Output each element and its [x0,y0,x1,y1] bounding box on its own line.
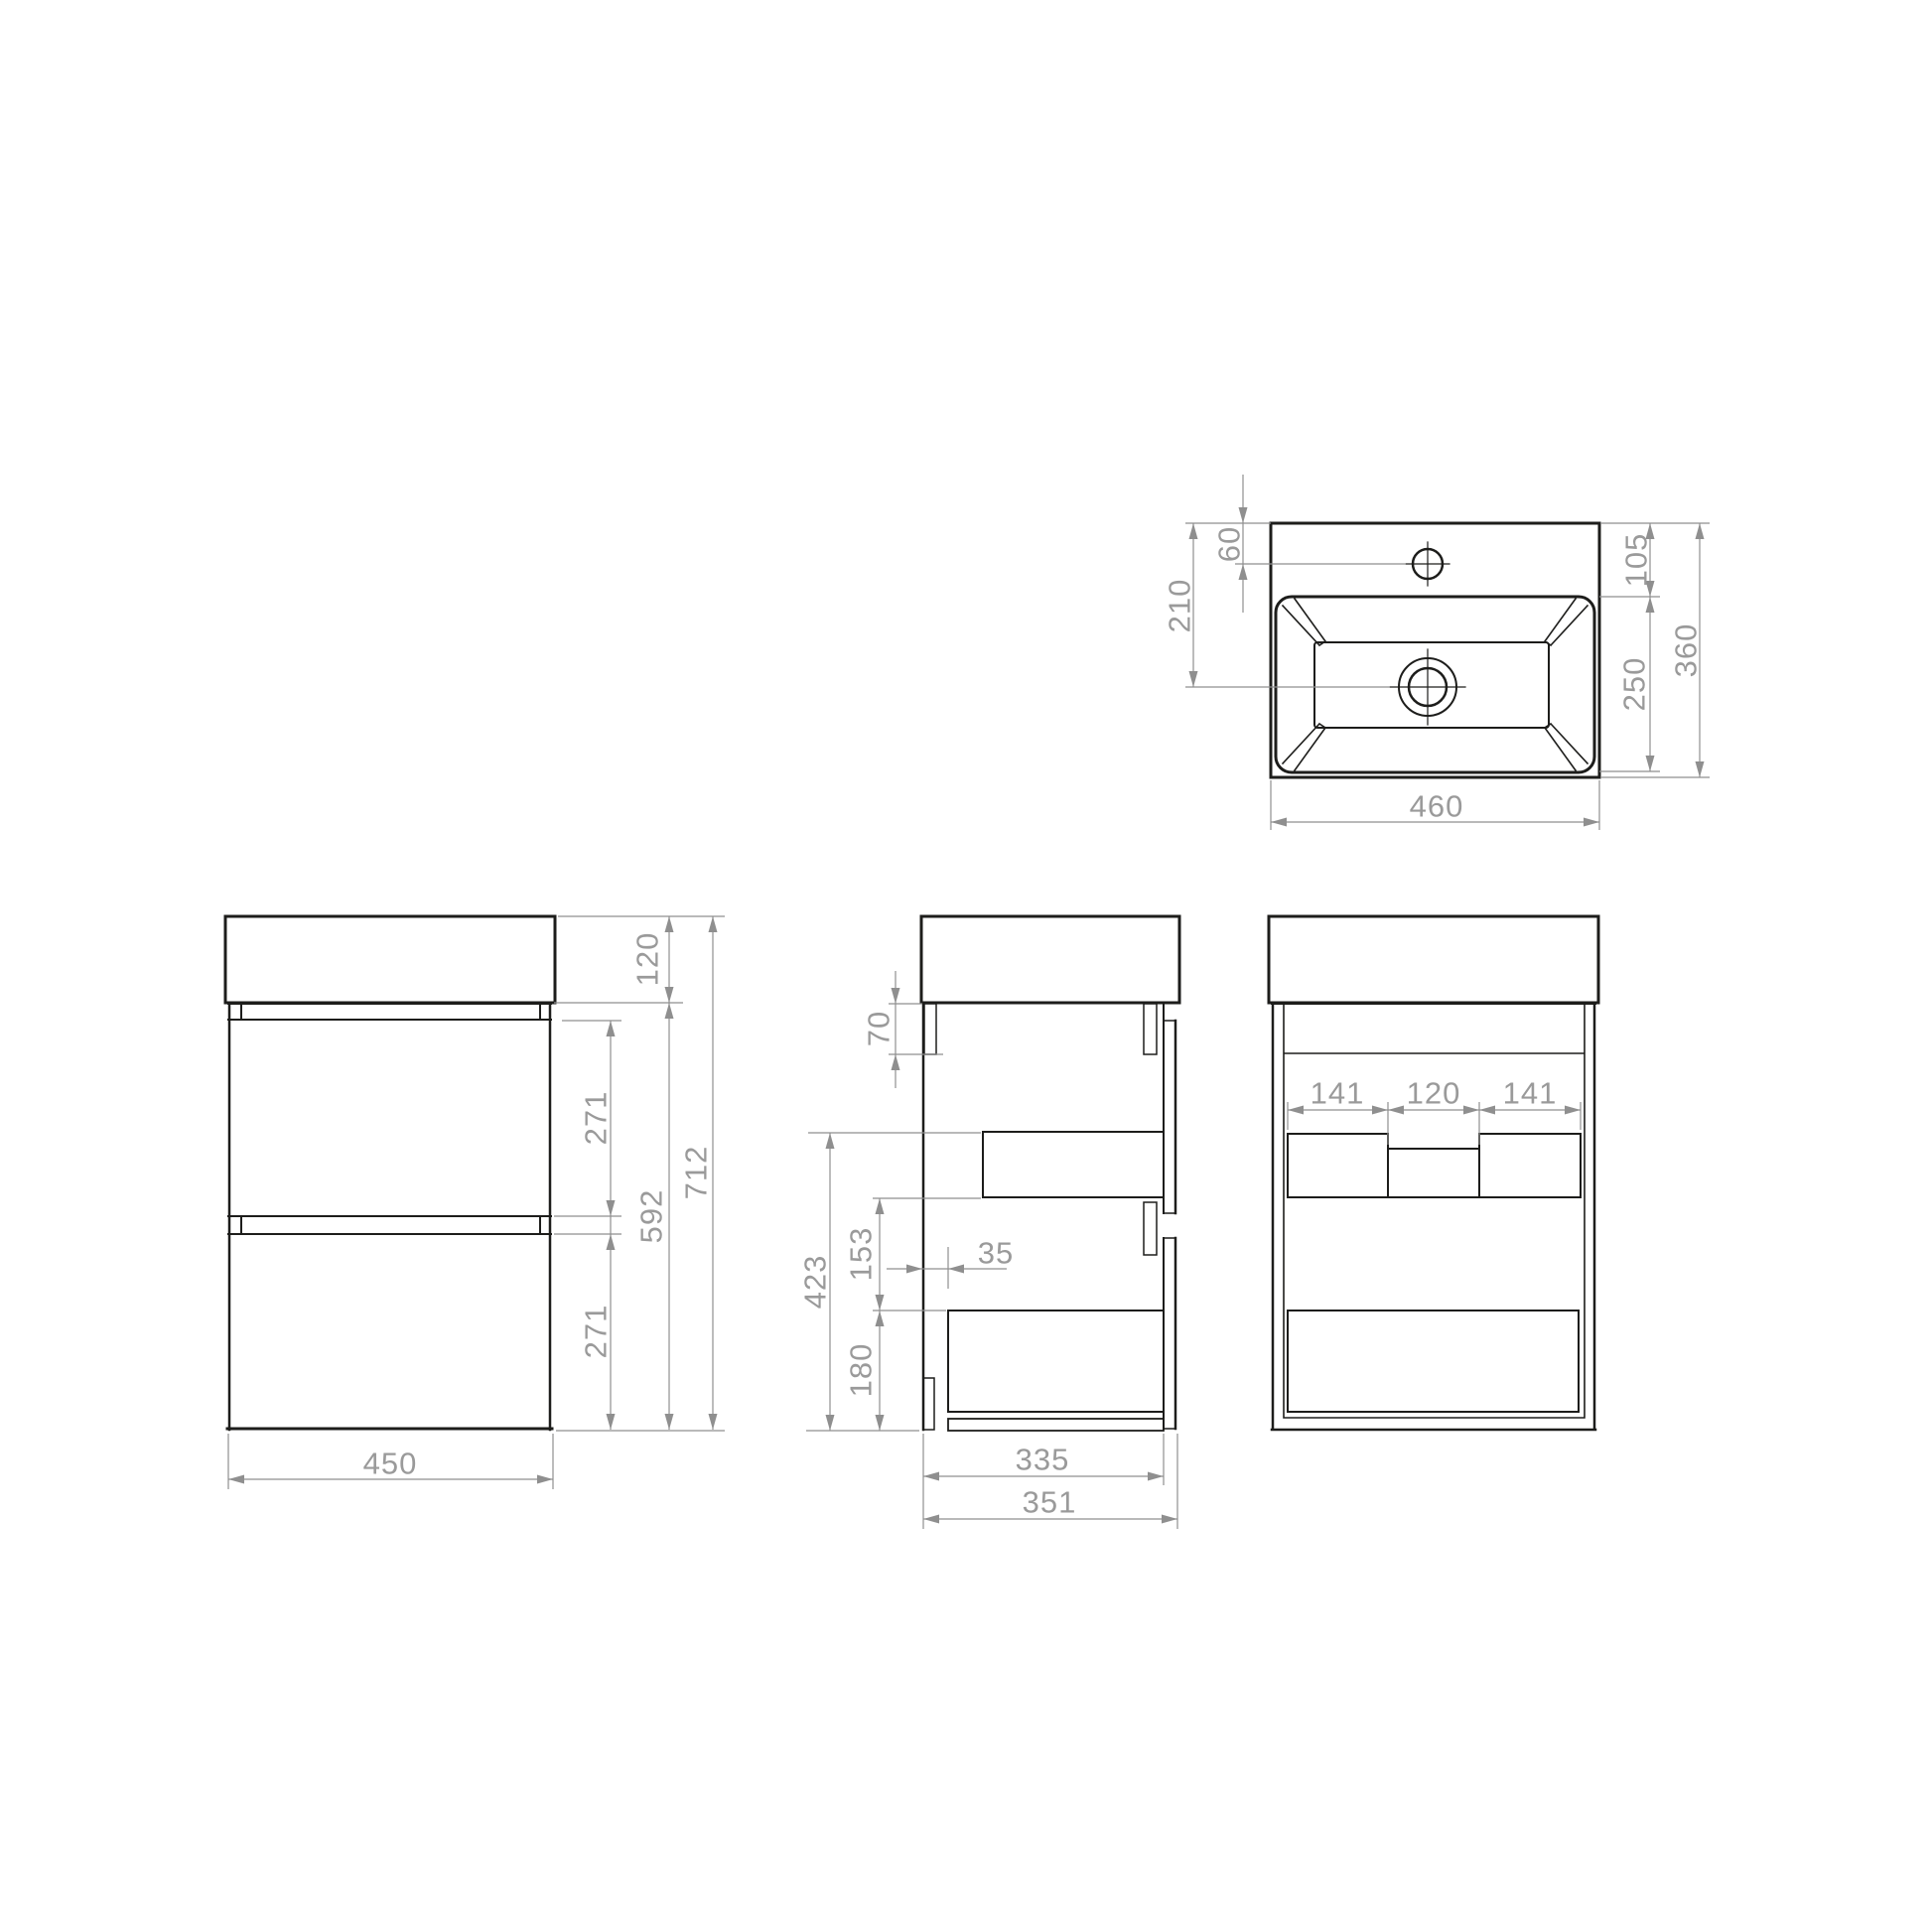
drain-crosshair [1390,649,1465,725]
dim-carcass-height: 592 [634,1189,669,1244]
dim-total-depth: 360 [1669,623,1704,678]
back-outline [1269,916,1598,1430]
dim-faucet-offset: 60 [1212,526,1247,562]
dim-drawer-spacing: 153 [844,1227,879,1282]
dim-cutout-right: 141 [1503,1076,1558,1111]
basin-outline [1271,523,1599,777]
faucet-crosshair [1406,542,1449,586]
cabinet-back-view: 141 120 141 [1269,916,1598,1430]
dim-basin-height: 120 [630,932,665,987]
carcass-inner [1284,1003,1585,1418]
handle-grooves [228,1004,551,1234]
cutout-left [1288,1134,1388,1197]
dim-cutout-left: 141 [1311,1076,1365,1111]
rail-back-top [924,1004,936,1054]
rail-front-top [1144,1004,1157,1054]
dim-upper-drawer: 271 [579,1091,614,1146]
basin-back [1269,916,1598,1003]
dim-depth: 351 [1023,1485,1077,1520]
dim-drain-offset: 210 [1163,579,1197,633]
rail-back-bottom [923,1378,934,1430]
lower-drawer-box [948,1311,1164,1412]
vanity-dimension-drawing: 60 210 105 250 360 460 120 271 592 271 7… [0,0,1932,1932]
dim-mounting-rail: 70 [862,1011,897,1046]
cabinet-front-view: 120 271 592 271 712 450 [225,916,725,1489]
upper-drawer-box [983,1132,1164,1197]
basin-side [921,916,1179,1003]
dim-lower-drawer: 271 [579,1305,614,1359]
basin-outer-rect [1271,523,1599,777]
dim-total-width: 460 [1410,789,1464,824]
lower-opening [1288,1311,1579,1412]
rail-front-mid [1144,1202,1157,1255]
cutout-right [1479,1134,1581,1197]
front-outline [225,916,555,1430]
basin-rim [1276,597,1594,772]
cabinet-side-view: 70 423 153 180 35 335 351 [798,916,1180,1529]
dim-width: 450 [363,1447,418,1481]
dim-inner-depth: 335 [1016,1443,1070,1477]
dim-cutout-center: 120 [1407,1076,1461,1111]
bottom-panel-hatched [948,1419,1164,1431]
dim-rim-to-basin: 105 [1619,533,1654,588]
dim-back-inset: 35 [978,1236,1014,1271]
dim-lower-inner: 180 [844,1343,879,1398]
cutout-center [1388,1149,1479,1197]
washbasin-top-view: 60 210 105 250 360 460 [1163,475,1711,830]
carcass-outer [1272,1003,1595,1430]
side-view-dimensions: 70 423 153 180 35 335 351 [798,971,1178,1529]
basin-front [225,916,555,1003]
dim-inner-height: 423 [798,1255,833,1310]
technical-drawing-canvas: 60 210 105 250 360 460 120 271 592 271 7… [0,0,1932,1932]
dim-basin-depth: 250 [1617,657,1652,712]
side-outline [921,916,1179,1431]
dim-total-height: 712 [679,1146,714,1200]
drawer-front-caps [1164,1021,1175,1429]
basin-corner-chamfers [1283,599,1587,770]
